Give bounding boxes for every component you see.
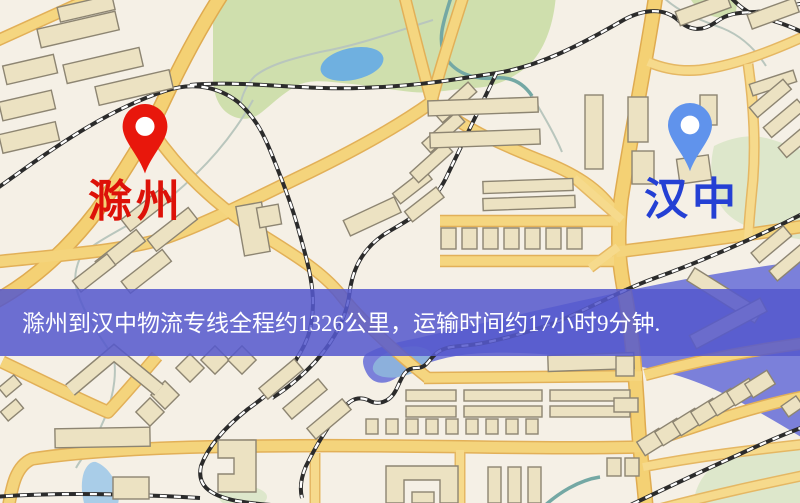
origin-city-label: 滁州 <box>88 177 184 226</box>
route-banner: 滁州到汉中物流专线全程约1326公里，运输时间约17小时9分钟. <box>0 289 800 356</box>
destination-city-label: 汉中 <box>644 175 740 224</box>
pin-hole <box>135 117 154 136</box>
large-building <box>55 427 150 448</box>
map-canvas: 滁州到汉中物流专线全程约1326公里，运输时间约17小时9分钟. 滁州 汉中 <box>0 0 800 503</box>
pin-hole <box>681 116 700 135</box>
route-banner-text: 滁州到汉中物流专线全程约1326公里，运输时间约17小时9分钟. <box>22 311 660 336</box>
map-screenshot: 滁州到汉中物流专线全程约1326公里，运输时间约17小时9分钟. 滁州 汉中 <box>0 0 800 503</box>
